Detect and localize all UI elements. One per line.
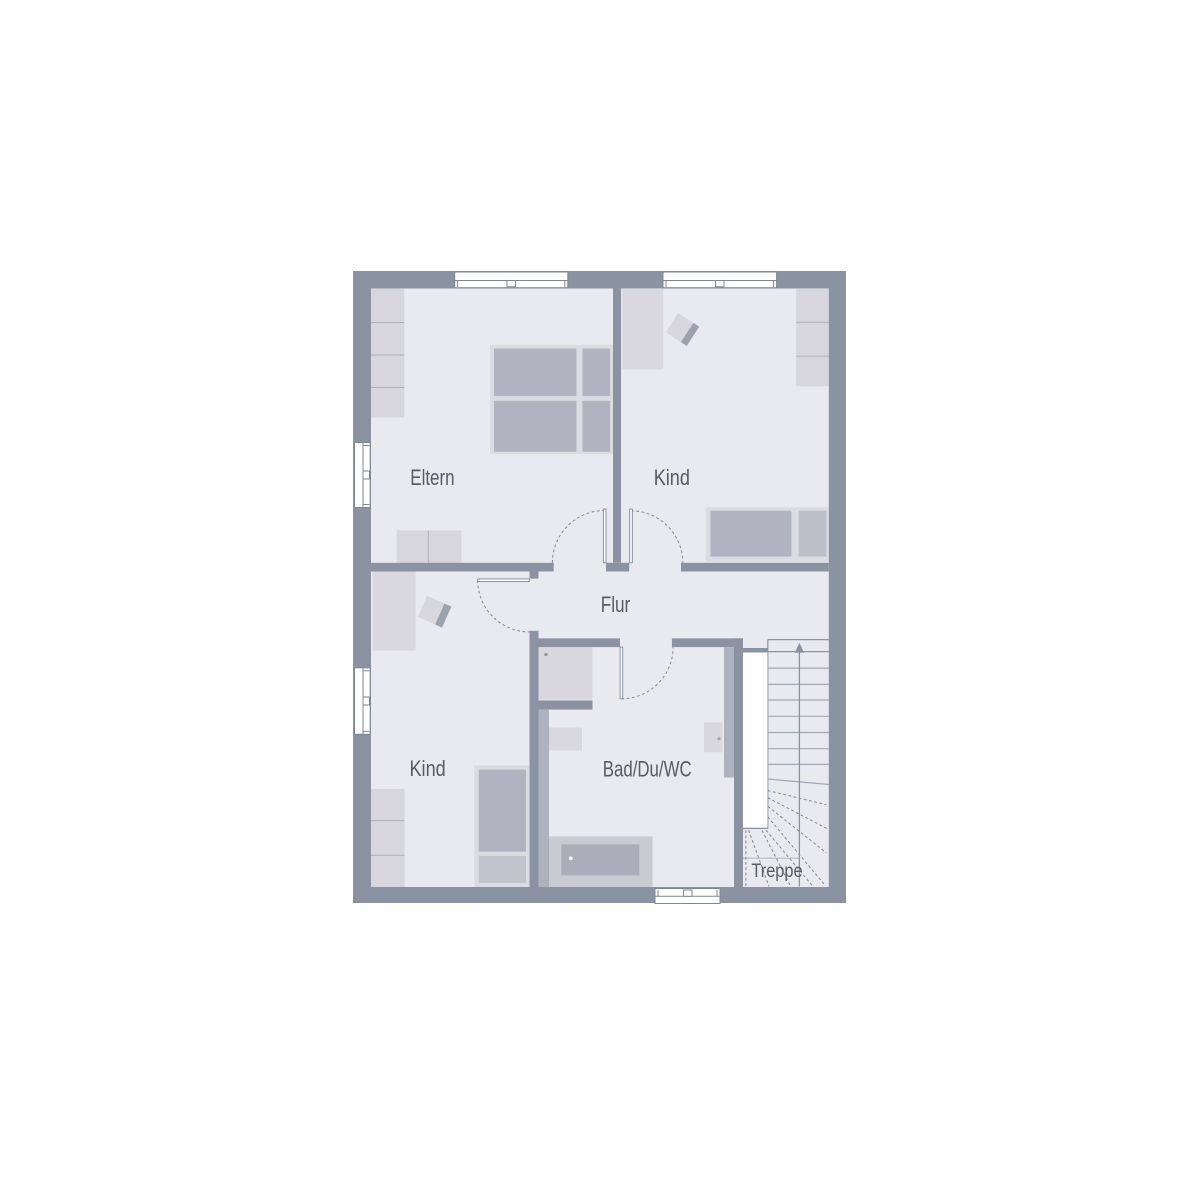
svg-text:Eltern: Eltern <box>410 465 454 490</box>
svg-text:Flur: Flur <box>601 592 631 617</box>
svg-text:Bad/Du/WC: Bad/Du/WC <box>603 757 692 782</box>
svg-text:Treppe: Treppe <box>751 860 802 882</box>
svg-text:Kind: Kind <box>410 756 446 781</box>
svg-text:Kind: Kind <box>654 465 690 490</box>
